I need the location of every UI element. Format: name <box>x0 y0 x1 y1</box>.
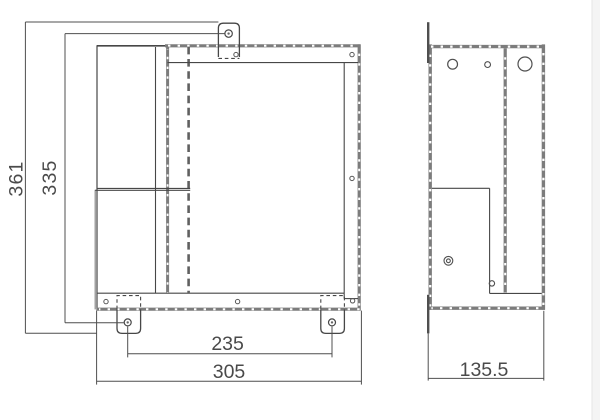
dim-label-depth: 135.5 <box>460 359 509 381</box>
side-hole-large <box>518 57 532 71</box>
dim-label-foot-hole-spacing: 235 <box>211 333 244 355</box>
front-view <box>95 23 360 333</box>
page-edge-strip <box>592 0 600 420</box>
side-ring-hole-outer <box>444 256 453 265</box>
screw-hole <box>350 52 354 56</box>
side-holes <box>444 57 532 286</box>
drawing-page: 361 335 235 305 135.5 <box>0 0 600 420</box>
screw-hole <box>350 176 354 180</box>
side-view <box>428 22 545 333</box>
screw-hole <box>234 52 238 56</box>
screw-hole <box>235 299 239 303</box>
bottom-right-mounting-tab <box>321 296 345 334</box>
dim-mount-hole-height <box>65 34 225 323</box>
screw-hole <box>104 299 108 303</box>
dim-label-overall-width: 305 <box>213 361 246 383</box>
technical-drawing: 361 335 235 305 135.5 <box>0 0 600 420</box>
side-outline-hatched <box>429 44 545 309</box>
side-hole-medium <box>448 59 458 69</box>
screw-holes-front <box>104 52 355 303</box>
front-outline-hatched <box>96 44 360 310</box>
front-panel-lines <box>95 47 358 299</box>
top-mounting-tab <box>218 23 239 58</box>
dimensions: 361 335 235 305 135.5 <box>6 22 544 385</box>
dim-label-overall-height: 361 <box>6 160 28 196</box>
dim-label-mount-hole-height: 335 <box>39 159 61 195</box>
screw-hole <box>350 299 354 303</box>
bottom-left-mounting-tab <box>117 296 141 334</box>
side-inner-lines <box>432 188 542 293</box>
side-ring-hole-inner <box>447 259 451 263</box>
side-hole-small <box>485 62 491 68</box>
